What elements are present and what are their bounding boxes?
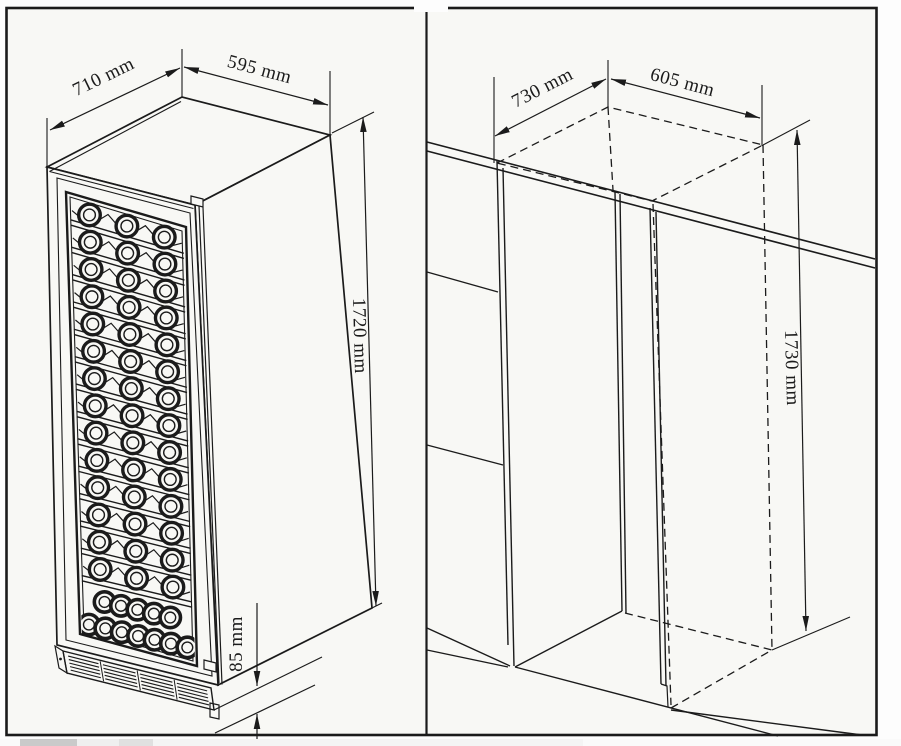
scrollbar-segment [153, 739, 583, 746]
leveling-foot [210, 703, 219, 719]
technical-drawing-page: 710 mm 595 mm 1720 mm 85 mm [0, 0, 901, 746]
scrollbar-segment [119, 739, 153, 746]
dim-label-plinth: 85 mm [226, 616, 247, 672]
grille-screw [59, 658, 62, 661]
dim-label-height: 1720 mm [348, 298, 371, 374]
top-notch-artifact [414, 0, 448, 12]
scrollbar-segment [77, 739, 119, 746]
dim-label-niche-height: 1730 mm [780, 330, 803, 406]
bottom-bar-sliver [0, 739, 901, 746]
dimension-diagram: 710 mm 595 mm 1720 mm 85 mm [0, 0, 901, 746]
scrollbar-thumb[interactable] [20, 739, 77, 746]
